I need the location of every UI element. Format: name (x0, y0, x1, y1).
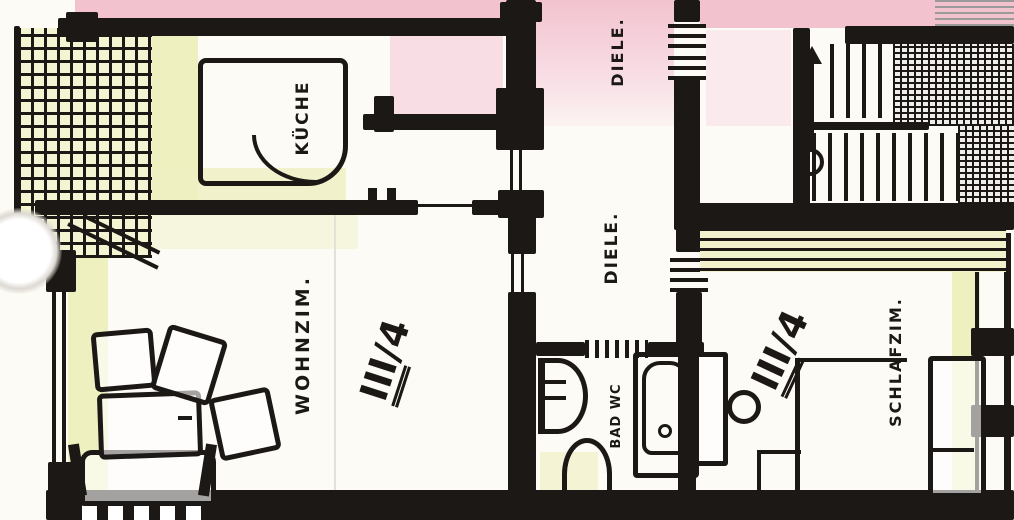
coffee-table (97, 390, 203, 460)
stairs-upper-flight (830, 44, 894, 118)
wash-pink-top-strip (75, 0, 532, 20)
unit-right-circle-mark (727, 390, 761, 424)
wall-kitchen-living-divider (35, 200, 418, 215)
stairs-side-hatch-lower (958, 126, 1014, 204)
door-leaf-hall-left-b (519, 148, 522, 194)
wall-stairwell-left (793, 28, 810, 208)
unit-label-right: III/4 (737, 296, 823, 404)
left-window-line-b (62, 288, 66, 490)
coffee-table-notch (178, 416, 192, 420)
wall-bath-top-a (536, 342, 585, 356)
unit-label-left: III/4 (346, 307, 423, 414)
wall-hall-right-mid (674, 78, 700, 212)
wall-top-left (58, 18, 532, 36)
sink-tick-2 (544, 396, 566, 400)
floor-plan-scan: KÜCHE DIELE. DIELE. WOHNZIM. BAD WC SCHL… (0, 0, 1014, 520)
bath-label: BAD WC (607, 381, 625, 451)
wall-hall-left-block-mid (496, 88, 544, 150)
wash-pink-corridor-right (706, 30, 791, 126)
living-room-label: WOHNZIM. (292, 275, 314, 415)
wall-top-left-block (66, 12, 98, 42)
door-hatch-hall-right-1 (668, 20, 706, 48)
wall-central-upper (508, 212, 536, 254)
wall-divider-left-block (374, 96, 394, 132)
door-leaf-living (418, 204, 472, 207)
sink-tick-1 (544, 380, 566, 384)
door-hatch-hall-right-2 (668, 52, 706, 80)
wall-bedroom-top (674, 203, 1014, 230)
bedroom-label: SCHLAFZIM. (885, 287, 905, 437)
bed-foot-line (930, 448, 974, 452)
toilet (562, 438, 612, 498)
armchair-3 (208, 386, 282, 461)
armchair-1 (91, 327, 158, 392)
bedroom-partition-v (795, 358, 800, 498)
wash-pink-hall-top (536, 0, 674, 126)
bathtub-inner (642, 361, 688, 455)
bedroom-closet-band (700, 228, 1006, 272)
stairs-arrow-line (810, 62, 814, 150)
door-leaf-central-b (521, 254, 524, 292)
door-leaf-hall-left-a (510, 148, 513, 194)
hall-middle-label: DIELE. (602, 208, 622, 288)
wall-diele-right-lower (676, 292, 702, 348)
bottom-window-mullions (82, 504, 208, 520)
hall-top-label: DIELE. (607, 15, 627, 89)
kitchen-label: KÜCHE (293, 68, 313, 168)
stairs-side-hatch-upper (893, 44, 1014, 126)
wall-hall-left-block-top (500, 2, 542, 22)
scan-fold-line (334, 215, 336, 490)
wall-hall-right-top (674, 0, 700, 22)
wall-top-right (845, 26, 1014, 44)
hatch-above-stairs (935, 0, 1014, 26)
bedroom-niche-h (757, 450, 801, 454)
stairs-lower-flight (812, 133, 960, 201)
kitchen-window-ticks (368, 188, 404, 215)
wall-diele-right-upper (676, 212, 702, 252)
left-window-line-a (52, 288, 56, 490)
bed (928, 356, 986, 498)
right-window-pier-1 (971, 328, 1014, 356)
wall-kitchen-living-divider-b (472, 200, 502, 215)
stairs-landing-line (807, 122, 929, 130)
door-leaf-central-a (511, 254, 514, 292)
wall-central-lower (508, 292, 536, 500)
bedroom-niche-v (757, 450, 761, 498)
bathtub-drain (658, 424, 672, 438)
wash-pink-mid (390, 36, 503, 114)
